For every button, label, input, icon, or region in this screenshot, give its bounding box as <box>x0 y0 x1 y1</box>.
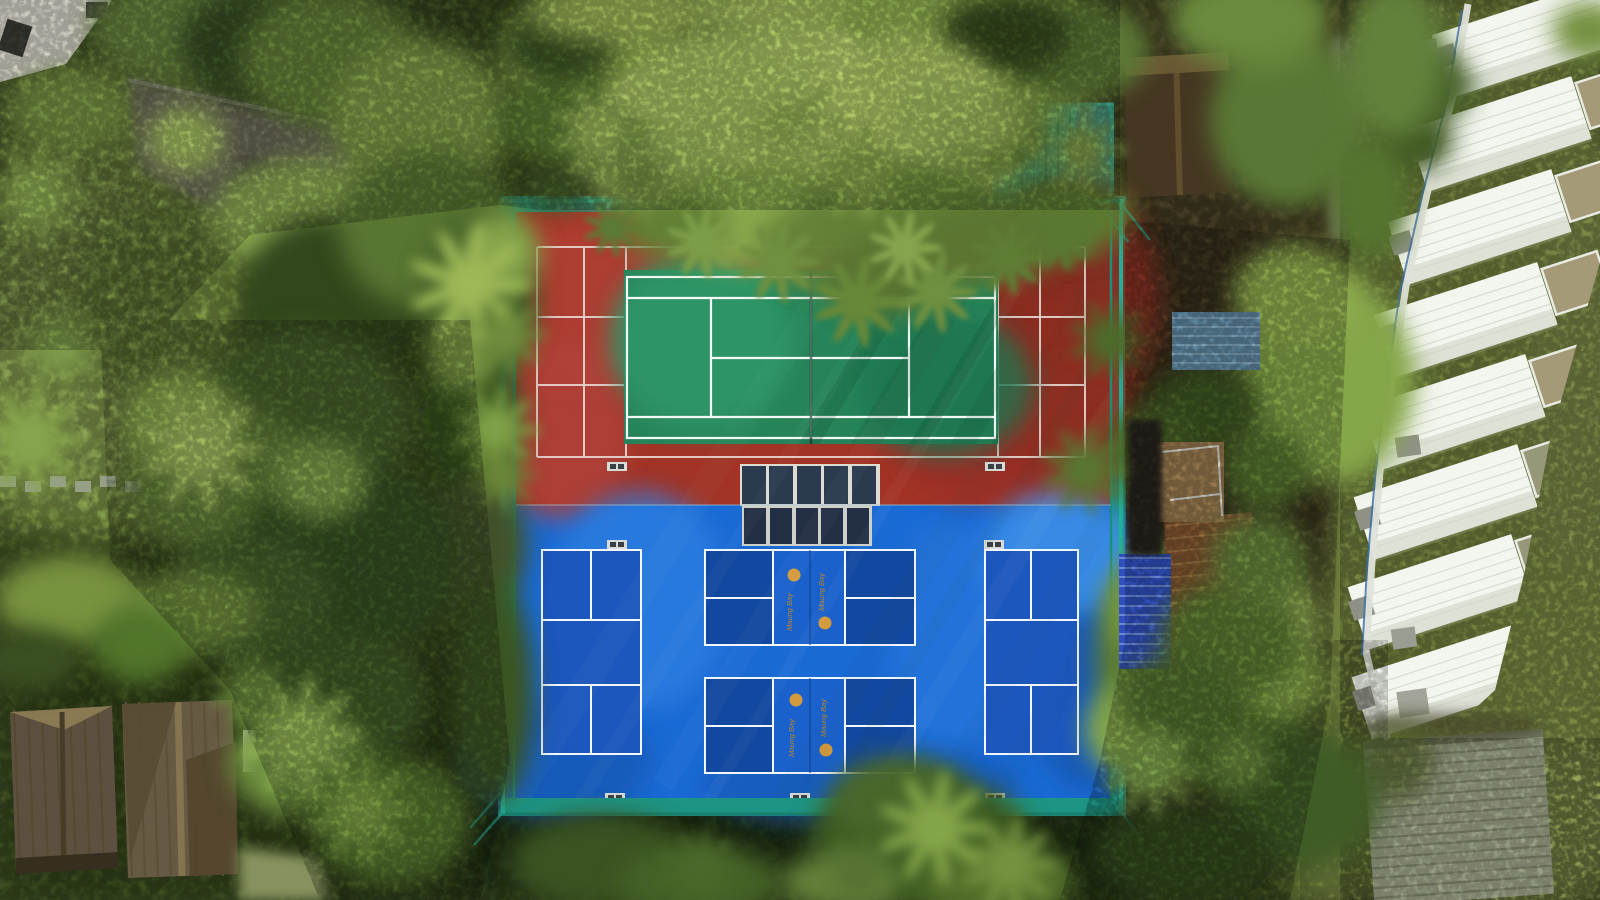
svg-text:Maung Bay: Maung Bay <box>787 718 796 757</box>
